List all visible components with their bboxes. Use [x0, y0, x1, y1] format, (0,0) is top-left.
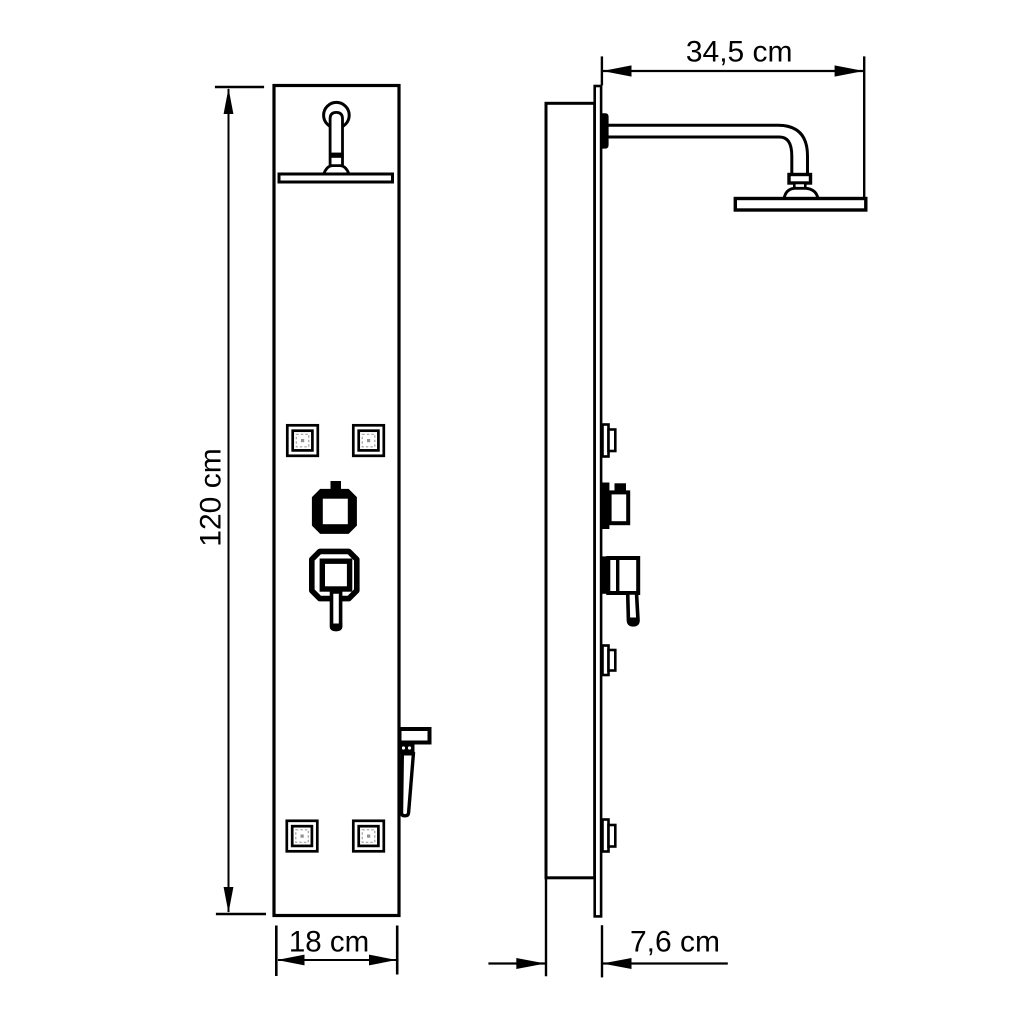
svg-text:18 cm: 18 cm — [289, 926, 369, 959]
svg-text:34,5 cm: 34,5 cm — [686, 36, 793, 69]
svg-text:7,6 cm: 7,6 cm — [630, 926, 720, 959]
svg-text:120 cm: 120 cm — [195, 448, 228, 546]
